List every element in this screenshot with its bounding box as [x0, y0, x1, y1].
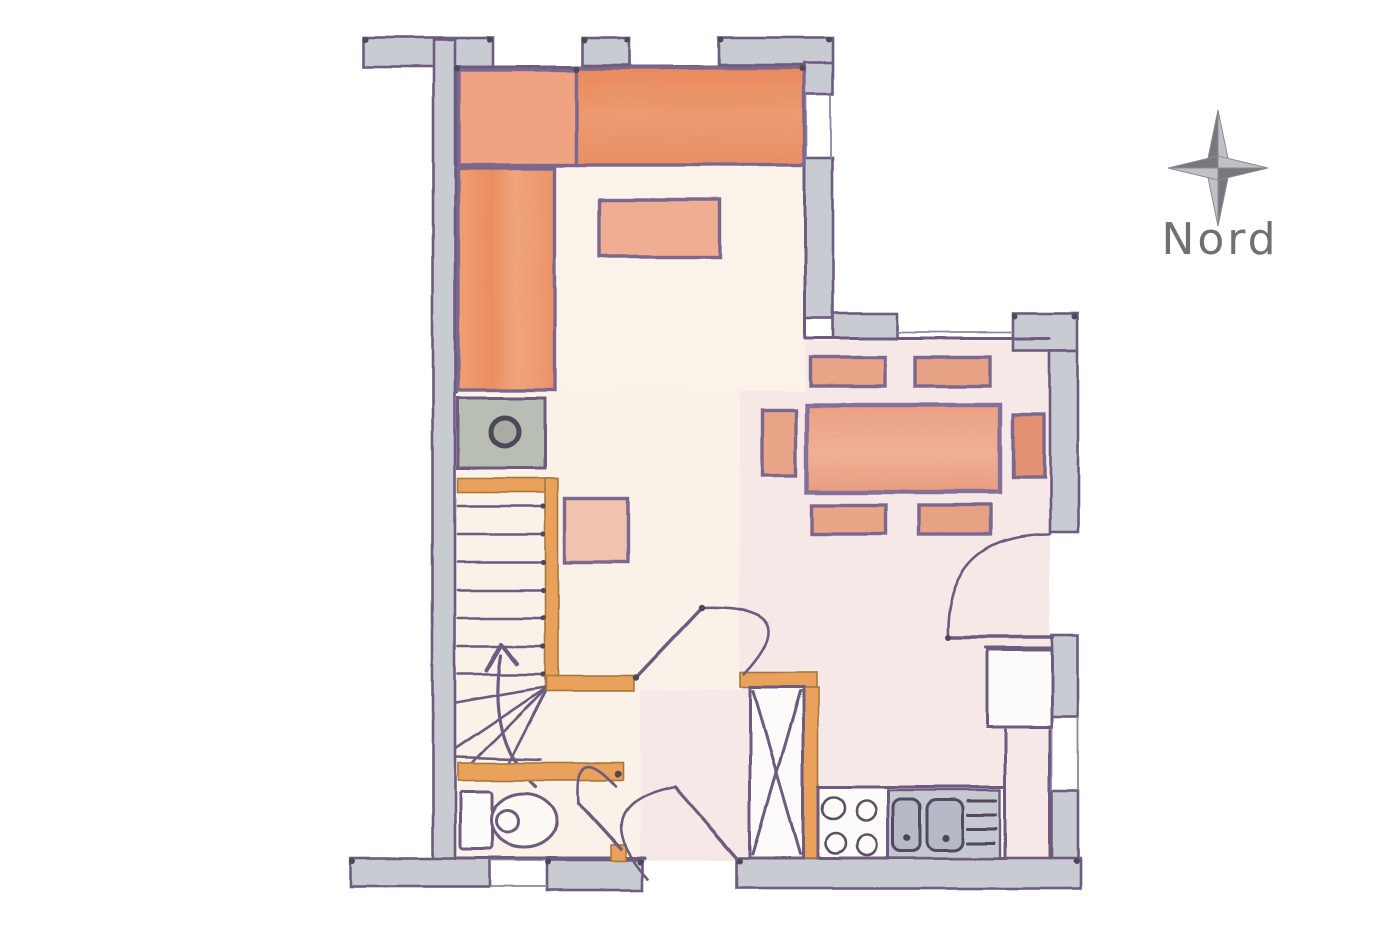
building-plan [349, 37, 1080, 890]
wall-bottom-right [737, 858, 1080, 888]
sink-basin-right [927, 800, 963, 850]
bed-right [577, 68, 805, 165]
floor-plan-page: Nord [0, 0, 1400, 933]
fridge-box [987, 650, 1052, 727]
wall-se-corner [1052, 790, 1078, 862]
wall-east-upper [1050, 350, 1078, 532]
toilet-cistern [460, 791, 492, 849]
wall-east-mid [1052, 635, 1078, 717]
tall-cabinet-x [750, 687, 803, 858]
pink-chest [565, 498, 628, 562]
washing-machine-door-icon [491, 418, 519, 446]
wall-bottom-left [350, 858, 490, 886]
wall-top-pillar [583, 38, 630, 65]
wall-bedroom-east [805, 158, 833, 318]
compass-rose-icon [1168, 110, 1268, 226]
compass-label: Nord [1161, 214, 1278, 265]
wall-ne-corner-block [805, 63, 833, 95]
bathroom-north-wall-beam [458, 763, 623, 780]
partition-beam-right [740, 672, 816, 687]
kitchen-cabinet-side-beam [803, 687, 818, 858]
wall-dining-north-left-cap [833, 313, 897, 338]
floor-plan-drawing: Nord [0, 0, 1400, 933]
chair-top-left [810, 357, 885, 386]
compass: Nord [1161, 110, 1278, 265]
partition-beam-left [546, 676, 634, 691]
sink-drain-left [904, 835, 911, 842]
chair-bottom-right [918, 505, 991, 534]
sink-basin-left [893, 799, 920, 851]
wall-left-strip [433, 40, 455, 862]
sink-drain-right [942, 834, 949, 841]
chair-left [762, 410, 796, 476]
wall-top-right-bar [718, 38, 833, 65]
wall-bottom-middle [547, 860, 643, 890]
wardrobe [458, 168, 555, 390]
chair-right [1013, 415, 1044, 477]
dining-table [807, 405, 1000, 492]
toilet [460, 791, 557, 849]
chair-top-right [915, 357, 990, 386]
wall-shelf [600, 200, 720, 257]
wall-top-left-bar [363, 38, 493, 67]
toilet-bowl [491, 793, 557, 847]
stair-top-landing-beam [458, 478, 550, 492]
wall-dining-north-right-cap [1013, 313, 1078, 350]
stair-rail-beam [545, 478, 558, 688]
chair-bottom-left [812, 505, 886, 534]
bed-left [459, 70, 577, 165]
